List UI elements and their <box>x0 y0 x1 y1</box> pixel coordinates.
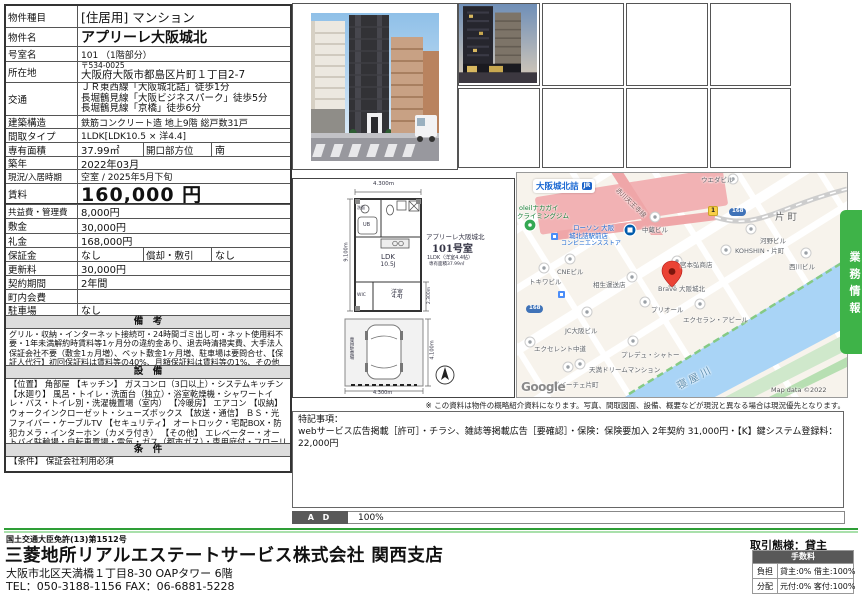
row-label-2: 償却・敷引 <box>144 248 212 261</box>
map-label-poi: KOHSHIN・片町 <box>735 245 784 255</box>
row-label: 更新料 <box>6 262 78 275</box>
table-row: 共益費・管理費 8,000円 <box>6 204 290 218</box>
row-label: 契約期間 <box>6 276 78 289</box>
company-name: 三菱地所リアルエステートサービス株式会社 関西支店 <box>5 542 443 567</box>
bedroom-size: 4.4J <box>383 294 411 300</box>
photo-cell-6-empty <box>542 88 624 168</box>
table-row: 敷金 30,000円 <box>6 218 290 233</box>
jr-logo: JR <box>582 182 593 190</box>
row-value: 2022年03月 <box>78 157 290 169</box>
map-label-poi: 河野ビル <box>760 235 786 245</box>
route-shield-168: 168 <box>526 305 543 313</box>
photo-cell-1 <box>458 3 540 86</box>
main-photo <box>292 3 458 170</box>
row-label: 現況/入居時期 <box>6 170 78 183</box>
map-label-katamachi: 片町 <box>775 209 800 223</box>
row-value: 鉄筋コンクリート造 地上9階 総戸数31戸 <box>78 116 290 128</box>
row-label: 保証金 <box>6 248 78 261</box>
floorplan: 4.300m アプリーレ大阪城北 101号室 1LDK（洋室4.4帖） 専有面積… <box>292 178 515 398</box>
map-label-poi: プレデュ・シャトー <box>621 349 680 359</box>
row-value: 37.99㎡ <box>78 143 144 156</box>
ldk-label: LDK <box>373 253 403 261</box>
map-label-poi: トキワビル <box>529 276 562 286</box>
map-label-poi: 相生運送店 <box>593 279 626 289</box>
row-value <box>78 290 290 303</box>
rent-value: 160,000 円 <box>78 184 290 203</box>
commission-row-value: 元付:0% 客付:100% <box>778 581 856 592</box>
table-row: 契約期間 2年間 <box>6 275 290 289</box>
row-label: 築年 <box>6 157 78 169</box>
row-value: なし <box>78 304 290 315</box>
map-label-lawson3: コンビニエンスストア <box>561 238 621 247</box>
row-value: 168,000円 <box>78 234 290 247</box>
table-row-rent: 賃料 160,000 円 <box>6 183 290 204</box>
commission-row-label: 分配 <box>753 579 778 593</box>
row-value: 30,000円 <box>78 219 290 233</box>
plan-layout: 1LDK（洋室4.4帖） <box>427 254 473 261</box>
special-notes-body: webサービス広告掲載［許可］・チラシ、雑誌等掲載広告［要確認］・保険：保険要加… <box>298 426 838 450</box>
row-value: 8,000円 <box>78 205 290 218</box>
access-line: 長堀鶴見線「京橋」徒歩6分 <box>81 104 201 115</box>
plan-area: 専有面積37.99㎡ <box>429 261 464 267</box>
ldk-size: 10.5J <box>373 261 403 268</box>
photo-cell-3-empty <box>626 3 708 86</box>
map-label-poi: ウエダビル <box>701 174 734 184</box>
table-row: 交通 ＪＲ東西線「大阪城北詰」徒歩1分 長堀鶴見線「大阪ビジネスパーク」徒歩5分… <box>6 82 290 115</box>
row-label: 駐車場 <box>6 304 78 315</box>
table-row: 専有面積 37.99㎡ 開口部方位 南 <box>6 142 290 156</box>
washstand-label: 洗面 <box>357 205 365 211</box>
route-shield-1: 1 <box>708 206 718 216</box>
table-row: 駐車場 なし <box>6 303 290 315</box>
row-value: 空室 / 2025年5月下旬 <box>78 170 290 183</box>
business-info-tab[interactable]: 業務情報 <box>840 210 862 354</box>
remarks-text: グリル・収納・インターネット接続可・24時間ゴミ出し可・ネット使用料不要・1年未… <box>6 328 290 365</box>
row-value-2: なし <box>212 248 290 261</box>
divider-green-light <box>4 531 858 533</box>
commission-table: 手数料 負担 貸主:0% 借主:100% 分配 元付:0% 客付:100% <box>752 550 854 594</box>
conditions-text: 【条件】 保証会社利用必須 <box>6 456 290 471</box>
map-attribution: Map data ©2022 <box>771 386 827 394</box>
table-row: 築年 2022年03月 <box>6 156 290 169</box>
table-row: 礼金 168,000円 <box>6 233 290 247</box>
map-label-poi: プリオール <box>651 304 684 314</box>
route-shield-168: 168 <box>729 208 746 216</box>
photo-cell-2-empty <box>542 3 624 86</box>
equipment-text: 【位置】 角部屋 【キッチン】 ガスコンロ（3口以上）・システムキッチン 【水廻… <box>6 378 290 443</box>
row-label-2: 開口部方位 <box>144 143 212 156</box>
equipment-header: 設 備 <box>6 365 290 378</box>
location-map[interactable]: 大阪城北詰 JR oleilナカガイ クライミングジム ローソン 大阪 城北詰駅… <box>516 172 848 398</box>
row-label: 物件種目 <box>6 6 78 27</box>
divider-green <box>4 528 858 530</box>
table-row: 町内会費 <box>6 289 290 303</box>
ad-value: 100% <box>348 511 845 524</box>
map-label-poi: JC大阪ビル <box>565 325 597 335</box>
ub-label: UB <box>363 222 370 228</box>
map-label-climb2: クライミングジム <box>517 210 569 220</box>
google-logo: Google <box>521 380 565 394</box>
row-value: [住居用] マンション <box>78 6 290 27</box>
row-value: 2年間 <box>78 276 290 289</box>
row-label: 所在地 <box>6 62 78 82</box>
map-label-poi: 天満ドリームマンション <box>589 364 660 374</box>
photo-cell-7-empty <box>626 88 708 168</box>
station-name: 大阪城北詰 <box>536 180 579 192</box>
row-label: 賃料 <box>6 184 78 203</box>
row-value: 30,000円 <box>78 262 290 275</box>
map-label-poi: 中蔵ビル <box>642 224 668 234</box>
map-label-poi: CNEビル <box>557 266 584 276</box>
row-label: 町内会費 <box>6 290 78 303</box>
ad-label: A D <box>292 511 348 524</box>
row-value: なし <box>78 248 144 261</box>
special-notes-title: 特記事項： <box>298 414 838 426</box>
plan-room-no: 101号室 <box>432 240 473 255</box>
row-label: 共益費・管理費 <box>6 205 78 218</box>
table-row: 物件種目 [住居用] マンション <box>6 6 290 27</box>
building-dusk-photo <box>459 4 537 83</box>
dim-top: 4.300m <box>373 181 394 187</box>
table-row: 物件名 アプリーレ大阪城北 <box>6 27 290 46</box>
row-value: 〒534-0025 大阪府大阪市都島区片町１丁目2-7 <box>78 62 290 82</box>
parking-label: 専用駐車場 <box>348 337 354 360</box>
commission-row-value: 貸主:0% 借主:100% <box>778 566 856 577</box>
row-label: 交通 <box>6 83 78 115</box>
table-row: 保証金 なし 償却・敷引 なし <box>6 247 290 261</box>
address-line: 大阪府大阪市都島区片町１丁目2-7 <box>81 70 245 82</box>
row-label: 号室名 <box>6 47 78 61</box>
row-label: 建築構造 <box>6 116 78 128</box>
dim-left: 9.100m <box>344 242 350 261</box>
table-row: 所在地 〒534-0025 大阪府大阪市都島区片町１丁目2-7 <box>6 61 290 82</box>
row-value-2: 南 <box>212 143 290 156</box>
row-value: アプリーレ大阪城北 <box>78 28 290 46</box>
row-value: 1LDK[LDK10.5 × 洋4.4] <box>78 129 290 142</box>
disclaimer-note: ※ この資料は物件の概略紹介資料になります。写真、間取図面、設備、概要などが現況… <box>292 400 845 411</box>
conditions-header: 条 件 <box>6 443 290 456</box>
map-label-poi: Brave 大阪城北 <box>658 283 705 293</box>
map-label-poi: 西川ビル <box>789 261 815 271</box>
commission-header: 手数料 <box>753 551 853 563</box>
commission-row-label: 負担 <box>753 564 778 578</box>
photo-cell-8-empty <box>710 88 791 168</box>
table-row: 更新料 30,000円 <box>6 261 290 275</box>
map-label-poi: 宮本弘商店 <box>680 259 713 269</box>
photo-cell-4-empty <box>710 3 791 86</box>
row-value: 101 （1階部分） <box>78 47 290 61</box>
commission-row: 負担 貸主:0% 借主:100% <box>753 563 853 578</box>
table-row: 号室名 101 （1階部分） <box>6 46 290 61</box>
map-label-poi: エクセラン・アビール <box>683 314 748 324</box>
dim-right-2: 4.100m <box>430 340 436 359</box>
row-label: 敷金 <box>6 219 78 233</box>
row-value: ＪＲ東西線「大阪城北詰」徒歩1分 長堀鶴見線「大阪ビジネスパーク」徒歩5分 長堀… <box>78 83 290 115</box>
row-label: 間取タイプ <box>6 129 78 142</box>
row-label: 物件名 <box>6 28 78 46</box>
wic-label: WIC <box>357 293 366 298</box>
table-row: 建築構造 鉄筋コンクリート造 地上9階 総戸数31戸 <box>6 115 290 128</box>
property-sheet: { "prop": { "rows": [ {"l":"物件種目","v":"[… <box>0 0 862 607</box>
building-exterior-photo <box>311 13 439 161</box>
photo-cell-5-empty <box>458 88 540 168</box>
property-table: 物件種目 [住居用] マンション 物件名 アプリーレ大阪城北 号室名 101 （… <box>4 4 292 473</box>
company-tel-fax: TEL：050-3188-1156 FAX：06-6881-5228 <box>6 578 235 594</box>
station-label: 大阪城北詰 JR <box>533 179 595 193</box>
row-label: 専有面積 <box>6 143 78 156</box>
row-label: 礼金 <box>6 234 78 247</box>
table-row: 現況/入居時期 空室 / 2025年5月下旬 <box>6 169 290 183</box>
map-label-poi: エクセレント中道 <box>534 343 586 353</box>
special-notes-box: 特記事項： webサービス広告掲載［許可］・チラシ、雑誌等掲載広告［要確認］・保… <box>292 411 844 508</box>
dim-right-1: 2.300m <box>427 287 432 304</box>
ad-bar: A D 100% <box>292 511 845 524</box>
commission-row: 分配 元付:0% 客付:100% <box>753 578 853 593</box>
table-row: 間取タイプ 1LDK[LDK10.5 × 洋4.4] <box>6 128 290 142</box>
remarks-header: 備 考 <box>6 315 290 328</box>
dim-bottom: 4.300m <box>373 390 392 396</box>
